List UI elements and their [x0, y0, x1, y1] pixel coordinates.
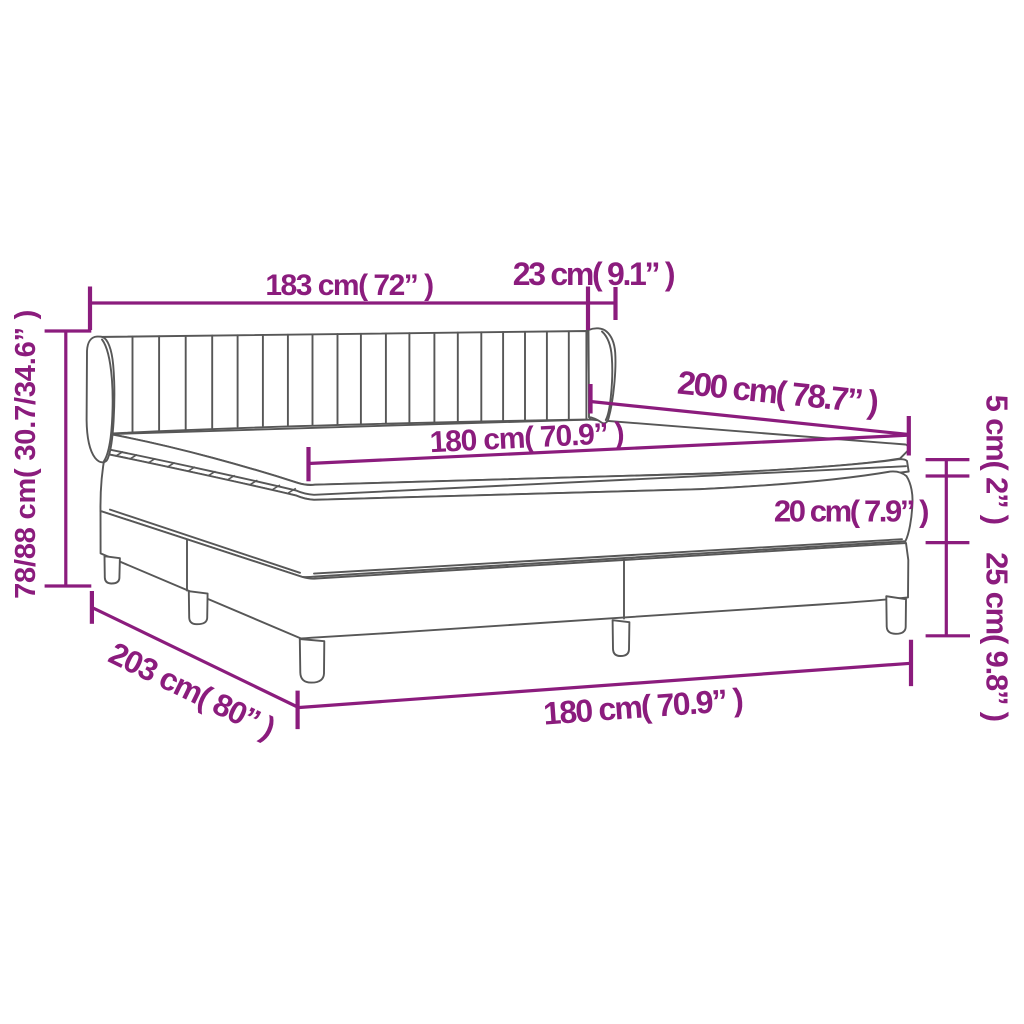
svg-text:5 cm( 2” ): 5 cm( 2” ) [980, 395, 1015, 524]
svg-text:78/88 cm( 30.7/34.6” ): 78/88 cm( 30.7/34.6” ) [10, 310, 42, 599]
svg-text:23 cm( 9.1” ): 23 cm( 9.1” ) [513, 256, 675, 292]
svg-text:183 cm( 72” ): 183 cm( 72” ) [265, 269, 433, 302]
svg-text:20 cm( 7.9” ): 20 cm( 7.9” ) [774, 494, 928, 529]
svg-text:25 cm( 9.8” ): 25 cm( 9.8” ) [980, 552, 1015, 721]
